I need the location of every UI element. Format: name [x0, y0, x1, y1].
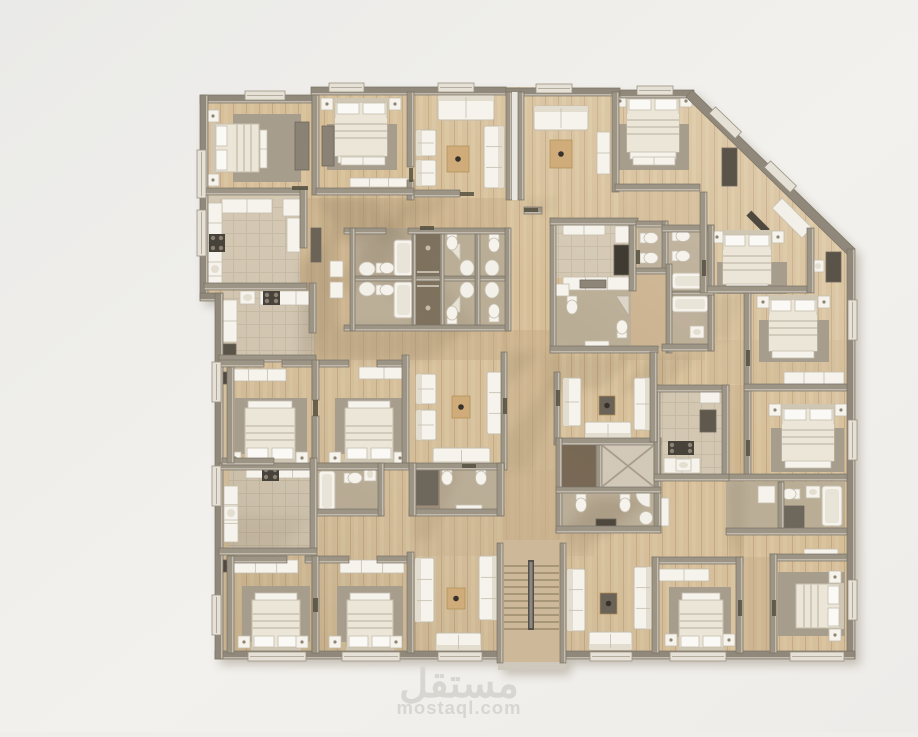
- svg-text:mostaql.com: mostaql.com: [396, 697, 521, 718]
